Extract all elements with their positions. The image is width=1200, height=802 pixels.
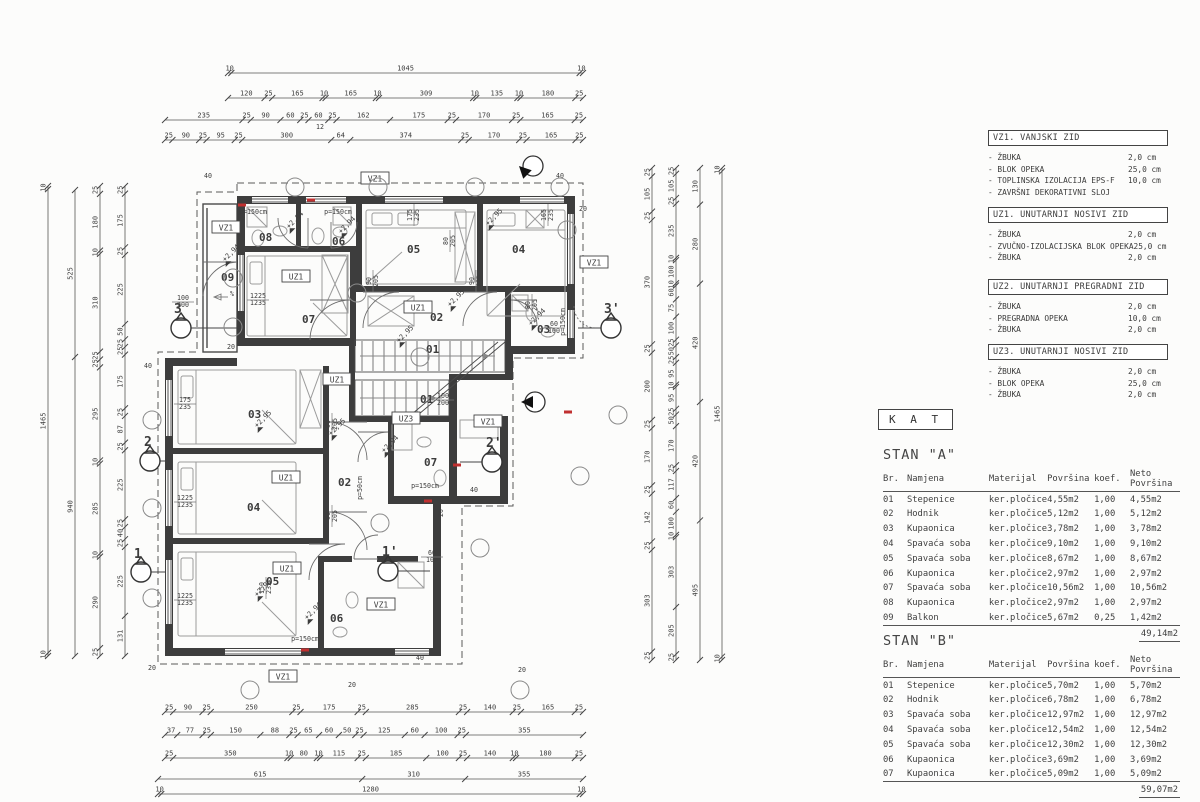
table-cell: 07 [883,767,907,782]
table-row: 05Spavaća sobaker.pločice12,30m21,0012,3… [883,737,1180,752]
table-cell: 08 [883,595,907,610]
dim-label: 25 [668,338,676,346]
dim-label: 105 [644,188,652,201]
dim-label: 25 [242,112,250,120]
dim-label: 25 [202,704,210,712]
dim-label: 25 [458,727,466,735]
legend-item-name: - ŽBUKA [988,389,1128,401]
dim-annotation: p=150cm [291,635,319,643]
dim-label: 175 [117,214,125,227]
table-cell: Hodnik [907,693,989,708]
table-cell: Spavaća soba [907,722,989,737]
table-cell: 1,00 [1094,737,1130,752]
legend-item-value: 2,0 cm [1128,229,1168,241]
dim-label: 135 [491,90,504,98]
dim-label: 25 [203,727,211,735]
table-cell: 9,10m2 [1130,536,1180,551]
dim-label: 25 [513,704,521,712]
dim-label: 40 [117,529,125,537]
table-cell: 12,30m2 [1047,737,1094,752]
room-number: 04 [247,501,261,514]
dim-label: 185 [390,750,403,758]
legend-item-name: - ŽBUKA [988,252,1128,264]
dim-label: 100 [668,517,676,530]
table-row: 03Spavaća sobaker.pločice12,97m21,0012,9… [883,708,1180,723]
room-number: 04 [512,243,526,256]
table-row: 03Kupaonicaker.pločice3,78m21,003,78m2 [883,522,1180,537]
table-cell: 3,69m2 [1130,752,1180,767]
dim-label: 75 [668,304,676,312]
dim-label: 25 [358,704,366,712]
dim-annotation: 20 [348,681,356,689]
legend-item-name: - ŽBUKA [988,324,1128,336]
legend-item-value: 25,0 cm [1128,164,1168,176]
table-row: 04Spavaća sobaker.pločice12,54m21,0012,5… [883,722,1180,737]
legend-item: - ŽBUKA2,0 cm [988,252,1168,264]
dim-label: 303 [668,566,676,579]
table-cell: 12,97m2 [1047,708,1094,723]
table-cell: 2,97m2 [1130,595,1180,610]
table-row: 06Kupaonicaker.pločice3,69m21,003,69m2 [883,752,1180,767]
table-header-cell: Neto Površina [1130,655,1180,678]
room-number: 05 [407,243,420,256]
dim-label: 175 [117,375,125,388]
legend-item-name: - PREGRADNA OPEKA [988,313,1128,325]
legend-item-value [1128,187,1168,199]
dim-label: 310 [407,771,420,779]
dim-label: 495 [692,584,700,597]
wall-type-tag: VZ1 [219,224,234,233]
table-cell: 1,00 [1094,492,1130,507]
table-row: 01Stepeniceker.pločice4,55m21,004,55m2 [883,492,1180,507]
wall-type-tag: VZ1 [587,259,602,268]
table-cell: 5,09m2 [1047,767,1094,782]
table-header-cell: koef. [1094,469,1130,492]
section-label: 2 [144,435,152,450]
dim-label: 180 [92,216,100,229]
dim-label: 25 [644,541,652,549]
legend-item: - BLOK OPEKA25,0 cm [988,378,1168,390]
dim-label: 370 [644,276,652,289]
dim-label: 235 [197,112,210,120]
table-cell: 8,67m2 [1047,551,1094,566]
table-cell: 03 [883,522,907,537]
table-cell: 3,78m2 [1047,522,1094,537]
dim-annotation: p=150cm [559,308,567,336]
table-header-cell: Br. [883,469,907,492]
dim-label: 25 [461,132,469,140]
table-cell: 12,54m2 [1130,722,1180,737]
table-cell: 1,00 [1094,752,1130,767]
dim-label: 25 [117,442,125,450]
dim-label: 25 [644,212,652,220]
dim-label: 25 [292,704,300,712]
table-cell: ker.pločice [989,722,1047,737]
dim-label: 90 [182,132,190,140]
red-mark [238,204,246,207]
dim-label: 170 [668,439,676,452]
dim-label: 170 [644,450,652,463]
dim-label: 250 [245,704,258,712]
dim-label: 95 [668,369,676,377]
table-cell: 02 [883,693,907,708]
dim-label: 60 [411,727,419,735]
red-mark [453,464,461,467]
table-cell: ker.pločice [989,551,1047,566]
wall-type-tag: UZ1 [280,565,295,574]
dim-label: 100 [435,727,448,735]
table-cell: Spavaća soba [907,551,989,566]
dim-label: 25 [117,539,125,547]
dim-label: 25 [668,407,676,415]
table-cell: Kupaonica [907,767,989,782]
dim-label: 25 [117,519,125,527]
table-cell: ker.pločice [989,507,1047,522]
dim-label: 1465 [40,413,48,430]
level-mark: +2,94 [285,210,306,231]
dim-label: 131 [117,630,125,643]
dim-label: 37 [167,727,175,735]
dim-annotation: 20 [518,666,526,674]
table-cell: ker.pločice [989,752,1047,767]
dim-label: 1045 [397,65,414,73]
dim-label: 25 [92,186,100,194]
dim-label: 280 [692,238,700,251]
table-row: 06Kupaonicaker.pločice2,97m21,002,97m2 [883,566,1180,581]
table-cell: 5,70m2 [1047,678,1094,693]
dim-label: 180 [539,750,552,758]
section-label: 3' [604,302,620,317]
legend-section: VZ1. VANJSKI ZID- ŽBUKA2,0 cm- BLOK OPEK… [988,130,1168,198]
leader-circle [466,178,484,196]
legend-item-name: - ZAVRŠNI DEKORATIVNI SLOJ [988,187,1128,199]
table-cell: 1,00 [1094,581,1130,596]
table-cell: ker.pločice [989,581,1047,596]
dim-annotation: 40 [204,172,212,180]
dim-annotation: 20 [227,343,235,351]
table-header-cell: Namjena [907,655,989,678]
room-number: 01 [420,393,434,406]
legend-item-value: 2,0 cm [1128,366,1168,378]
legend-item: - BLOK OPEKA25,0 cm [988,164,1168,176]
dim-label: 374 [399,132,412,140]
leader-circle [286,178,304,196]
table-cell: 1,00 [1094,767,1130,782]
dim-label: 50 [117,327,125,335]
table-cell: 5,67m2 [1047,610,1094,625]
wall-type-tag: UZ1 [279,474,294,483]
dim-label: 140 [484,704,497,712]
table-cell: 2,97m2 [1047,595,1094,610]
red-mark [564,411,572,414]
table-header-cell: Materijal [989,469,1047,492]
dim-label: 25 [164,132,172,140]
legend-item: - ŽBUKA2,0 cm [988,389,1168,401]
dim-label: 162 [357,112,370,120]
floorplan-sheet: { "floor_label": "K A T", "legend_sectio… [0,0,1200,802]
dim-label: 355 [518,727,531,735]
table-cell: ker.pločice [989,708,1047,723]
dim-label: 1280 [362,786,379,794]
table-cell: 02 [883,507,907,522]
table-cell: 12,30m2 [1130,737,1180,752]
dim-annotation: p=150cm [239,208,267,216]
dim-label: 25 [355,727,363,735]
table-cell: ker.pločice [989,610,1047,625]
dim-label: 165 [291,90,304,98]
table-header-cell: Materijal [989,655,1047,678]
dim-label: 142 [644,511,652,524]
table-cell: 12,97m2 [1130,708,1180,723]
dim-label: 50 [668,347,676,355]
section-label: 1 [134,547,142,562]
table-row: 07Kupaonicaker.pločice5,09m21,005,09m2 [883,767,1180,782]
leader-circle [241,681,259,699]
dim-label: 100 [436,750,449,758]
dim-label: 25 [117,347,125,355]
legend-item: - ZVUČNO-IZOLACIJSKA BLOK OPEKA25,0 cm [988,241,1168,253]
dim-label: 25 [289,727,297,735]
table-cell: Spavaća soba [907,581,989,596]
table-cell: 1,00 [1094,566,1130,581]
section-circle [482,452,502,472]
table-cell: 05 [883,551,907,566]
table-row: 02Hodnikker.pločice6,78m21,006,78m2 [883,693,1180,708]
leader-circle [511,681,529,699]
leader-circle [609,406,627,424]
room-number: 08 [259,231,272,244]
dim-label: 25 [575,704,583,712]
dim-label: 1465 [714,406,722,423]
legend-item: - ŽBUKA2,0 cm [988,366,1168,378]
dim-label: 303 [644,594,652,607]
leader-circle [551,178,569,196]
table-cell: 1,00 [1094,507,1130,522]
legend-item-name: - TOPLINSKA IZOLACIJA EPS-F [988,175,1128,187]
table-cell: ker.pločice [989,595,1047,610]
dim-label: 25 [300,112,308,120]
table-cell: 1,00 [1094,551,1130,566]
dim-label: 225 [117,478,125,491]
legend-item-value: 25,0 cm [1134,241,1168,253]
bed [178,370,296,444]
table-header-cell: Namjena [907,469,989,492]
red-mark [301,649,309,652]
dim-label: 25 [165,704,173,712]
dim-label: 225 [117,283,125,296]
dim-label: 64 [337,132,345,140]
dim-label: 165 [545,132,558,140]
table-cell: 05 [883,737,907,752]
dim-label: 225 [117,575,125,588]
table-row: 04Spavaća sobaker.pločice9,10m21,009,10m… [883,536,1180,551]
table-cell: 5,12m2 [1130,507,1180,522]
apartment-section: STAN "B"Br.NamjenaMaterijalPovršinakoef.… [883,633,1180,798]
leader-circle [411,348,429,366]
legend-item: - ZAVRŠNI DEKORATIVNI SLOJ [988,187,1168,199]
dim-label: 60 [325,727,333,735]
dim-label: 25 [358,750,366,758]
dim-label: 25 [512,112,520,120]
legend-section: UZ2. UNUTARNJI PREGRADNI ZID- ŽBUKA2,0 c… [988,279,1168,336]
table-cell: 1,00 [1094,595,1130,610]
windows [166,197,574,655]
table-cell: 06 [883,752,907,767]
legend-item-name: - ŽBUKA [988,229,1128,241]
table-cell: 5,70m2 [1130,678,1180,693]
dim-label: 25 [575,90,583,98]
dim-label: 100 [668,265,676,278]
dim-label: 60 [668,288,676,296]
table-cell: Spavaća soba [907,536,989,551]
legend-item: - ŽBUKA2,0 cm [988,152,1168,164]
table-cell: 6,78m2 [1047,693,1094,708]
legend-item-name: - ŽBUKA [988,152,1128,164]
dim-label: 77 [186,727,194,735]
dim-label: 25 [644,168,652,176]
total-value: 59,07m2 [1139,784,1180,798]
legend-item-value: 2,0 cm [1128,324,1168,336]
dim-label: 420 [692,455,700,468]
legend-item-name: - BLOK OPEKA [988,378,1128,390]
dim-label: 310 [92,296,100,309]
dim-label: 175 [323,704,336,712]
dim-annotation: 40 [144,362,152,370]
dim-label: 615 [254,771,267,779]
section-label: 1' [382,545,398,560]
dim-label: 25 [575,132,583,140]
table-cell: Stepenice [907,678,989,693]
table-cell: 04 [883,722,907,737]
table-header-cell: Br. [883,655,907,678]
table-cell: Kupaonica [907,752,989,767]
dim-label: 350 [224,750,237,758]
table-row: 08Kupaonicaker.pločice2,97m21,002,97m2 [883,595,1180,610]
table-row: 09Balkonker.pločice5,67m20,251,42m2 [883,610,1180,625]
wall-type-tag: UZ1 [330,376,345,385]
legend-item: - PREGRADNA OPEKA10,0 cm [988,313,1168,325]
dim-label: 25 [459,750,467,758]
table-cell: 09 [883,610,907,625]
dim-label: 25 [92,351,100,359]
room-number: 02 [338,476,351,489]
table-cell: 1,00 [1094,678,1130,693]
dim-label: 285 [406,704,419,712]
legend-section: UZ1. UNUTARNJI NOSIVI ZID- ŽBUKA2,0 cm- … [988,207,1168,264]
apartment-title: STAN "A" [883,447,1180,463]
dim-label: 170 [488,132,501,140]
floor-label: K A T [878,409,953,430]
table-cell: Kupaonica [907,522,989,537]
dim-label: 115 [333,750,346,758]
table-cell: 10,56m2 [1130,581,1180,596]
table-cell: 4,55m2 [1047,492,1094,507]
table-cell: Spavaća soba [907,708,989,723]
legend-item-value: 2,0 cm [1128,252,1168,264]
table-cell: 4,55m2 [1130,492,1180,507]
wall-type-tag: UZ1 [411,304,426,313]
table-header-cell: Površina [1047,655,1094,678]
room-number: 07 [424,456,437,469]
wall-type-tag: VZ1 [374,601,389,610]
table-cell: 03 [883,708,907,723]
dim-label: 165 [542,704,555,712]
table-cell: 06 [883,566,907,581]
table-cell: 1,00 [1094,693,1130,708]
table-cell: 10,56m2 [1047,581,1094,596]
dim-label: 25 [668,197,676,205]
table-cell: 2,97m2 [1130,566,1180,581]
dim-label: 120 [240,90,253,98]
dim-label: 95 [216,132,224,140]
section-circle [131,562,151,582]
red-mark [424,500,432,503]
table-row: 02Hodnikker.pločice5,12m21,005,12m2 [883,507,1180,522]
table-cell: Balkon [907,610,989,625]
table-cell: 0,25 [1094,610,1130,625]
section-circle [140,451,160,471]
apartment-section: STAN "A"Br.NamjenaMaterijalPovršinakoef.… [883,447,1180,642]
table-row: 01Stepeniceker.pločice5,70m21,005,70m2 [883,678,1180,693]
dim-annotation: 40 [470,486,478,494]
dim-label: 25 [264,90,272,98]
dim-annotation: 12 [316,123,324,131]
table-row: 05Spavaća sobaker.pločice8,67m21,008,67m… [883,551,1180,566]
legend-title: VZ1. VANJSKI ZID [988,130,1168,146]
dim-label: 105 [668,180,676,193]
dim-annotation: 40 [416,654,424,662]
table-header-cell: Neto Površina [1130,469,1180,492]
apartment-title: STAN "B" [883,633,1180,649]
dim-label: 25 [448,112,456,120]
dim-label: 100 [668,322,676,335]
dim-label: 300 [280,132,293,140]
slope-arrow [214,294,228,300]
dim-label: 25 [117,186,125,194]
legend-item: - TOPLINSKA IZOLACIJA EPS-F10,0 cm [988,175,1168,187]
section-label: 3 [174,302,182,317]
dim-label: 117 [668,478,676,491]
dim-label: 355 [518,771,531,779]
legend-item-value: 2,0 cm [1128,152,1168,164]
table-cell: 07 [883,581,907,596]
legend-title: UZ1. UNUTARNJI NOSIVI ZID [988,207,1168,223]
dim-label: 90 [261,112,269,120]
table-cell: 8,67m2 [1130,551,1180,566]
table-cell: ker.pločice [989,767,1047,782]
table-cell: Kupaonica [907,566,989,581]
dim-label: 25 [328,112,336,120]
level-mark: +2,95 [395,324,416,345]
dim-label: 25 [92,359,100,367]
table-cell: ker.pločice [989,678,1047,693]
table-cell: 2,97m2 [1047,566,1094,581]
dim-label: 525 [67,267,75,280]
leader-circle [371,514,389,532]
dim-label: 170 [478,112,491,120]
legend-section: UZ3. UNUTARNJI NOSIVI ZID- ŽBUKA2,0 cm- … [988,344,1168,401]
dim-label: 50 [668,416,676,424]
section-circle [378,561,398,581]
wall-type-tag: UZ3 [399,415,414,424]
legend-item: - ŽBUKA2,0 cm [988,324,1168,336]
apartment-table: Br.NamjenaMaterijalPovršinakoef.Neto Pov… [883,655,1180,782]
dim-annotation: p=150cm [411,482,439,490]
table-cell: 01 [883,678,907,693]
legend-item-value: 25,0 cm [1128,378,1168,390]
dim-label: 25 [644,420,652,428]
table-cell: ker.pločice [989,492,1047,507]
